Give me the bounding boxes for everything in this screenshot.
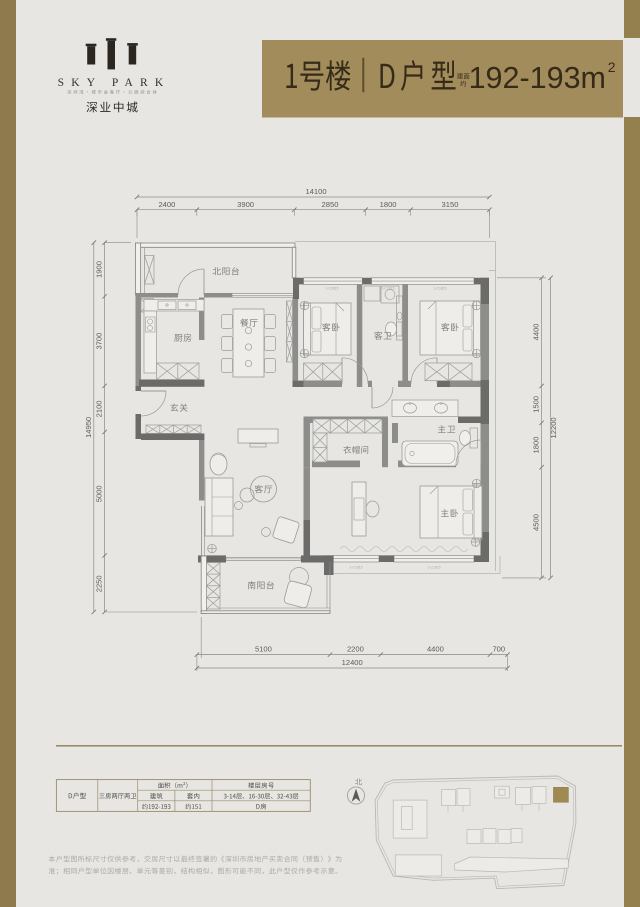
svg-text:5100: 5100 bbox=[255, 645, 272, 654]
svg-text:4400: 4400 bbox=[532, 323, 541, 340]
svg-text:192-193m: 192-193m bbox=[469, 61, 606, 95]
svg-text:2400: 2400 bbox=[158, 200, 175, 209]
svg-text:1800: 1800 bbox=[380, 200, 397, 209]
svg-text:1900: 1900 bbox=[95, 261, 104, 278]
svg-text:700: 700 bbox=[492, 645, 505, 654]
svg-text:1-C1815: 1-C1815 bbox=[427, 566, 440, 570]
svg-text:12400: 12400 bbox=[342, 658, 363, 667]
svg-text:3150: 3150 bbox=[442, 200, 459, 209]
svg-text:1-C1815: 1-C1815 bbox=[349, 566, 362, 570]
svg-text:1-C1815: 1-C1815 bbox=[325, 287, 338, 291]
svg-text:1500: 1500 bbox=[532, 396, 541, 413]
svg-text:12200: 12200 bbox=[549, 417, 558, 438]
svg-text:2250: 2250 bbox=[95, 575, 104, 592]
svg-text:2: 2 bbox=[608, 59, 616, 75]
svg-text:4500: 4500 bbox=[532, 514, 541, 531]
svg-text:2850: 2850 bbox=[322, 200, 339, 209]
svg-text:5000: 5000 bbox=[95, 485, 104, 502]
svg-text:1-C1815: 1-C1815 bbox=[433, 287, 446, 291]
svg-text:2200: 2200 bbox=[347, 645, 364, 654]
svg-text:1800: 1800 bbox=[532, 437, 541, 454]
svg-text:2100: 2100 bbox=[95, 400, 104, 417]
svg-text:3700: 3700 bbox=[95, 333, 104, 350]
svg-text:3900: 3900 bbox=[237, 200, 254, 209]
svg-text:14100: 14100 bbox=[305, 187, 326, 196]
svg-text:4400: 4400 bbox=[427, 645, 444, 654]
svg-text:SKY PARK: SKY PARK bbox=[58, 77, 171, 89]
svg-text:14950: 14950 bbox=[84, 417, 93, 438]
